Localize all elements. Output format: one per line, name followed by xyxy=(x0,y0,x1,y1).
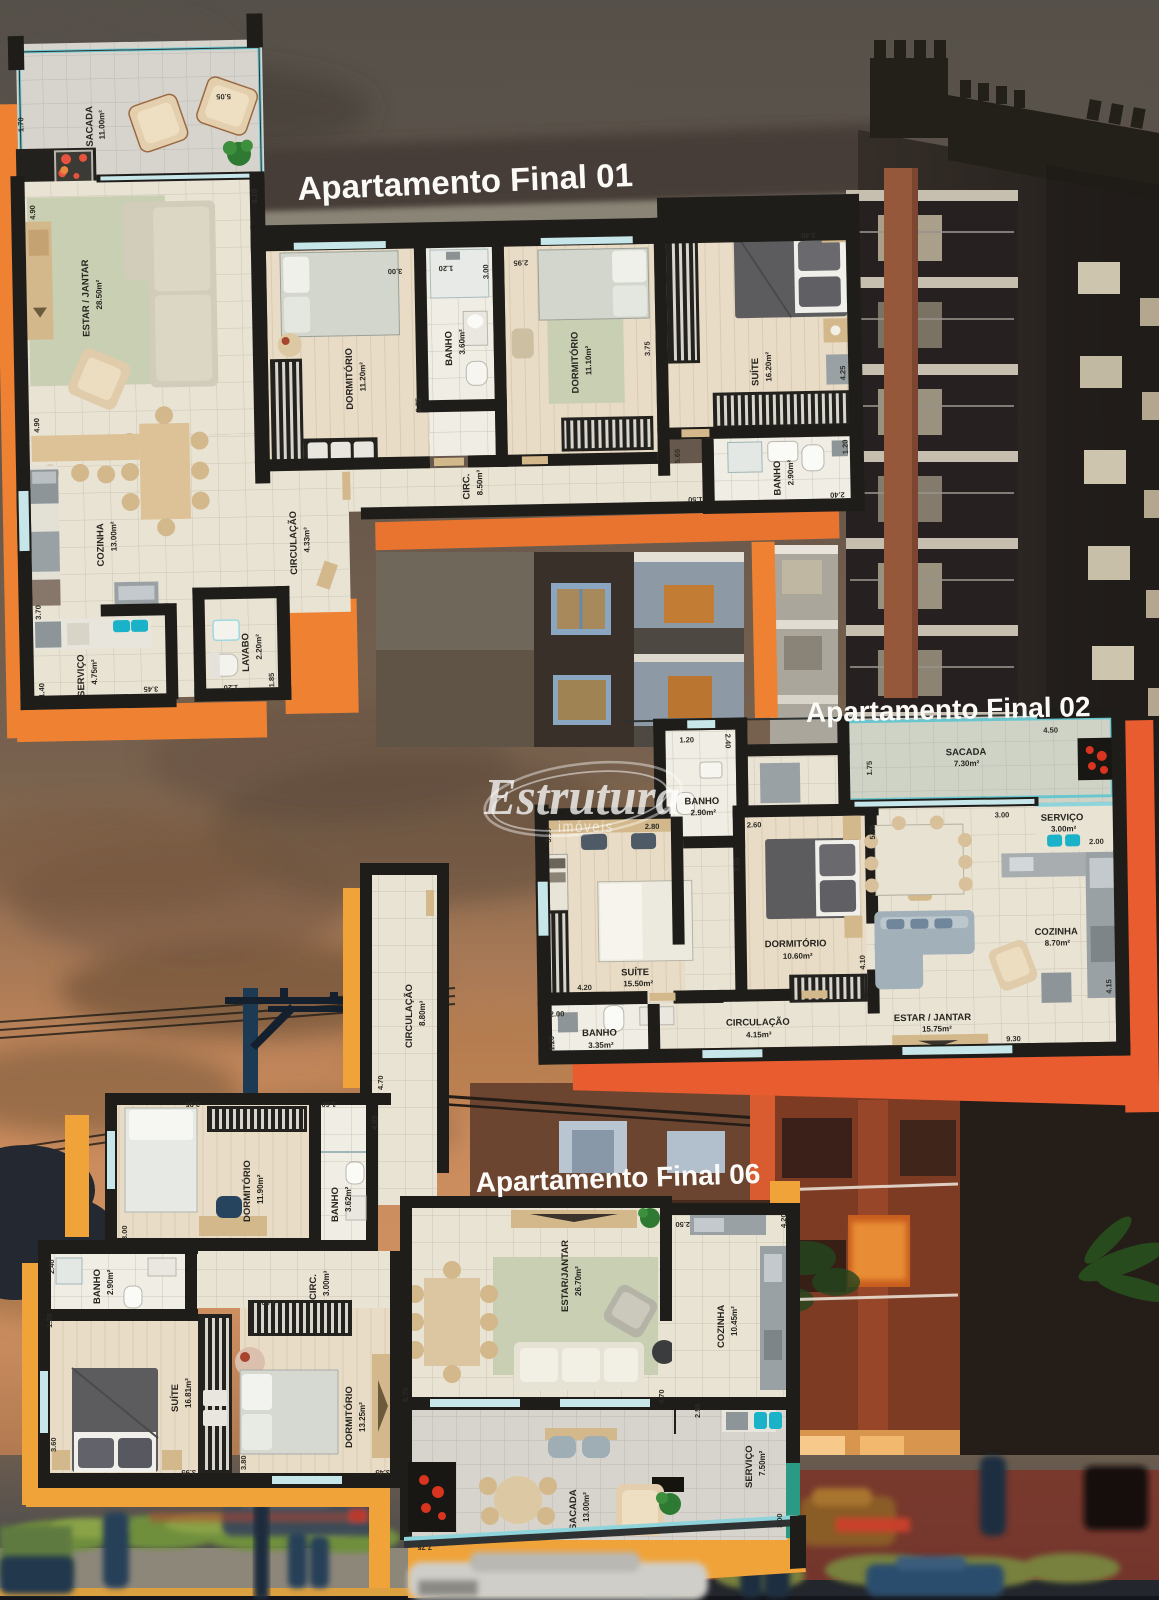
svg-text:COZINHA: COZINHA xyxy=(716,1305,727,1348)
svg-text:3.00: 3.00 xyxy=(481,264,490,279)
svg-text:SACADA: SACADA xyxy=(84,106,96,147)
svg-text:5.65: 5.65 xyxy=(673,449,682,464)
svg-text:Apartamento Final 02: Apartamento Final 02 xyxy=(805,691,1090,728)
svg-text:7.30m²: 7.30m² xyxy=(954,759,980,768)
svg-text:2.40: 2.40 xyxy=(47,1259,56,1274)
svg-text:3.45: 3.45 xyxy=(144,684,159,693)
svg-text:3.62m²: 3.62m² xyxy=(344,1186,353,1212)
svg-text:4.70: 4.70 xyxy=(657,1389,666,1404)
svg-text:26.70m²: 26.70m² xyxy=(574,1266,583,1296)
svg-text:2.40: 2.40 xyxy=(723,734,732,749)
svg-text:3.00: 3.00 xyxy=(775,1513,784,1528)
svg-text:4.25: 4.25 xyxy=(838,366,847,381)
svg-text:SERVIÇO: SERVIÇO xyxy=(76,654,88,697)
svg-text:CIRCULAÇÃO: CIRCULAÇÃO xyxy=(288,511,300,575)
svg-text:4.85: 4.85 xyxy=(370,1115,379,1130)
svg-text:3.00: 3.00 xyxy=(388,267,403,276)
svg-text:CIRC.: CIRC. xyxy=(461,474,472,500)
svg-text:1.40: 1.40 xyxy=(37,683,46,698)
svg-text:BANHO: BANHO xyxy=(684,796,719,808)
svg-text:4.90: 4.90 xyxy=(32,418,41,433)
svg-text:2.90m²: 2.90m² xyxy=(786,460,795,486)
svg-text:5.70: 5.70 xyxy=(401,1387,410,1402)
svg-text:SUÍTE: SUÍTE xyxy=(750,358,762,386)
svg-text:3.00: 3.00 xyxy=(995,810,1010,819)
svg-text:4.50: 4.50 xyxy=(1043,726,1058,735)
svg-text:3.75: 3.75 xyxy=(414,398,423,413)
svg-text:3.80: 3.80 xyxy=(239,1455,248,1470)
svg-text:9.30: 9.30 xyxy=(1006,1034,1021,1043)
svg-text:3.70: 3.70 xyxy=(34,605,43,620)
svg-text:10.60m²: 10.60m² xyxy=(783,951,813,960)
svg-text:3.40: 3.40 xyxy=(801,231,816,240)
svg-text:15.50m²: 15.50m² xyxy=(623,979,653,988)
svg-text:ESTAR / JANTAR: ESTAR / JANTAR xyxy=(80,259,92,337)
svg-text:3.60: 3.60 xyxy=(49,1437,58,1452)
svg-text:SERVIÇO: SERVIÇO xyxy=(744,1445,755,1488)
svg-text:SUÍTE: SUÍTE xyxy=(621,967,649,978)
svg-text:4.15: 4.15 xyxy=(1104,979,1113,994)
svg-text:imóveis: imóveis xyxy=(558,819,614,836)
svg-text:ESTAR/JANTAR: ESTAR/JANTAR xyxy=(560,1240,571,1312)
svg-text:3.60m²: 3.60m² xyxy=(457,329,466,355)
svg-text:ESTAR / JANTAR: ESTAR / JANTAR xyxy=(894,1012,972,1024)
svg-text:7.50m²: 7.50m² xyxy=(758,1450,767,1476)
svg-text:16.81m²: 16.81m² xyxy=(184,1378,193,1408)
svg-text:4.70: 4.70 xyxy=(376,1075,385,1090)
svg-text:8.70m²: 8.70m² xyxy=(1045,938,1071,947)
svg-text:4.75m²: 4.75m² xyxy=(90,659,99,685)
svg-text:SACADA: SACADA xyxy=(946,747,987,759)
svg-text:8.80m³: 8.80m³ xyxy=(418,1000,427,1026)
svg-text:BANHO: BANHO xyxy=(330,1187,341,1222)
svg-text:Estrutura: Estrutura xyxy=(483,769,680,826)
svg-text:1.20: 1.20 xyxy=(841,440,850,455)
svg-text:3.00: 3.00 xyxy=(120,1225,129,1240)
svg-text:2.00: 2.00 xyxy=(1089,837,1104,846)
svg-text:11.90m²: 11.90m² xyxy=(256,1174,265,1204)
svg-text:3.95: 3.95 xyxy=(185,1100,200,1109)
svg-text:13.00m²: 13.00m² xyxy=(109,521,119,551)
svg-text:2.00: 2.00 xyxy=(261,1298,276,1307)
svg-text:8.10: 8.10 xyxy=(250,189,259,204)
svg-text:LAVABO: LAVABO xyxy=(240,633,252,672)
svg-text:1.20: 1.20 xyxy=(679,735,694,744)
svg-text:2.95: 2.95 xyxy=(513,258,528,267)
svg-text:DORMITÓRIO: DORMITÓRIO xyxy=(343,348,356,410)
svg-text:2.20m²: 2.20m² xyxy=(254,634,263,660)
svg-text:CIRC.: CIRC. xyxy=(308,1274,319,1300)
svg-text:1.50: 1.50 xyxy=(688,495,703,504)
svg-text:COZINHA: COZINHA xyxy=(95,523,107,567)
svg-text:4.20: 4.20 xyxy=(779,1213,788,1228)
svg-text:DORMITÓRIO: DORMITÓRIO xyxy=(765,937,827,950)
svg-text:1.75: 1.75 xyxy=(865,761,874,776)
svg-text:2.40: 2.40 xyxy=(830,490,845,499)
svg-text:1.20: 1.20 xyxy=(547,1036,556,1051)
svg-text:3.00m³: 3.00m³ xyxy=(322,1270,331,1296)
svg-text:4.90: 4.90 xyxy=(28,205,37,220)
svg-text:10.45m²: 10.45m² xyxy=(730,1306,739,1336)
svg-text:4.15m³: 4.15m³ xyxy=(746,1030,772,1039)
svg-text:4.10: 4.10 xyxy=(858,955,867,970)
svg-text:7.75: 7.75 xyxy=(417,1543,432,1552)
svg-text:8.50m³: 8.50m³ xyxy=(475,469,484,495)
svg-text:CIRCULAÇÃO: CIRCULAÇÃO xyxy=(726,1017,790,1029)
svg-text:DORMITÓRIO: DORMITÓRIO xyxy=(343,1386,355,1448)
svg-text:1.20: 1.20 xyxy=(224,683,239,692)
svg-text:13.25m²: 13.25m² xyxy=(358,1402,367,1432)
svg-text:11.10m²: 11.10m² xyxy=(584,345,594,375)
svg-text:SACADA: SACADA xyxy=(568,1489,579,1530)
svg-text:COZINHA: COZINHA xyxy=(1034,926,1078,938)
svg-text:5.25: 5.25 xyxy=(868,825,877,840)
svg-text:4.33m³: 4.33m³ xyxy=(302,527,311,553)
svg-text:3.00m²: 3.00m² xyxy=(1051,824,1077,833)
svg-text:CIRCULAÇÃO: CIRCULAÇÃO xyxy=(404,984,415,1048)
svg-text:2.60: 2.60 xyxy=(747,820,762,829)
svg-text:2.00: 2.00 xyxy=(550,1009,565,1018)
svg-text:2.90m²: 2.90m² xyxy=(691,808,717,817)
svg-text:1.85: 1.85 xyxy=(267,673,276,688)
svg-text:3.35m²: 3.35m² xyxy=(588,1041,614,1050)
svg-text:15.75m²: 15.75m² xyxy=(922,1024,952,1033)
svg-text:1.20: 1.20 xyxy=(439,264,454,273)
svg-text:1.60: 1.60 xyxy=(321,1100,336,1109)
svg-text:1.20: 1.20 xyxy=(45,1313,54,1328)
svg-text:3.45: 3.45 xyxy=(375,1468,390,1477)
svg-text:13.00m²: 13.00m² xyxy=(582,1492,591,1522)
svg-text:BANHO: BANHO xyxy=(443,331,455,366)
svg-text:2.90m²: 2.90m² xyxy=(106,1269,115,1295)
svg-text:11.00m²: 11.00m² xyxy=(97,110,107,140)
svg-text:3.95: 3.95 xyxy=(181,1468,196,1477)
svg-text:SUÍTE: SUÍTE xyxy=(170,1384,181,1412)
svg-text:5.05: 5.05 xyxy=(216,92,231,101)
svg-text:SERVIÇO: SERVIÇO xyxy=(1041,812,1084,824)
svg-text:1.70: 1.70 xyxy=(16,117,25,132)
svg-text:11.20m²: 11.20m² xyxy=(358,362,368,392)
svg-text:BANHO: BANHO xyxy=(772,461,784,496)
svg-text:4.20: 4.20 xyxy=(577,983,592,992)
svg-text:2.50: 2.50 xyxy=(693,1403,702,1418)
svg-text:16.20m²: 16.20m² xyxy=(764,351,774,381)
svg-text:BANHO: BANHO xyxy=(92,1269,103,1304)
svg-text:BANHO: BANHO xyxy=(582,1028,617,1040)
svg-text:DORMITÓRIO: DORMITÓRIO xyxy=(241,1160,253,1222)
svg-text:3.55: 3.55 xyxy=(732,857,741,872)
svg-text:3.75: 3.75 xyxy=(643,341,652,356)
svg-text:28.50m²: 28.50m² xyxy=(94,279,104,309)
svg-text:2.50: 2.50 xyxy=(675,1220,690,1229)
svg-text:DORMITÓRIO: DORMITÓRIO xyxy=(568,332,581,394)
